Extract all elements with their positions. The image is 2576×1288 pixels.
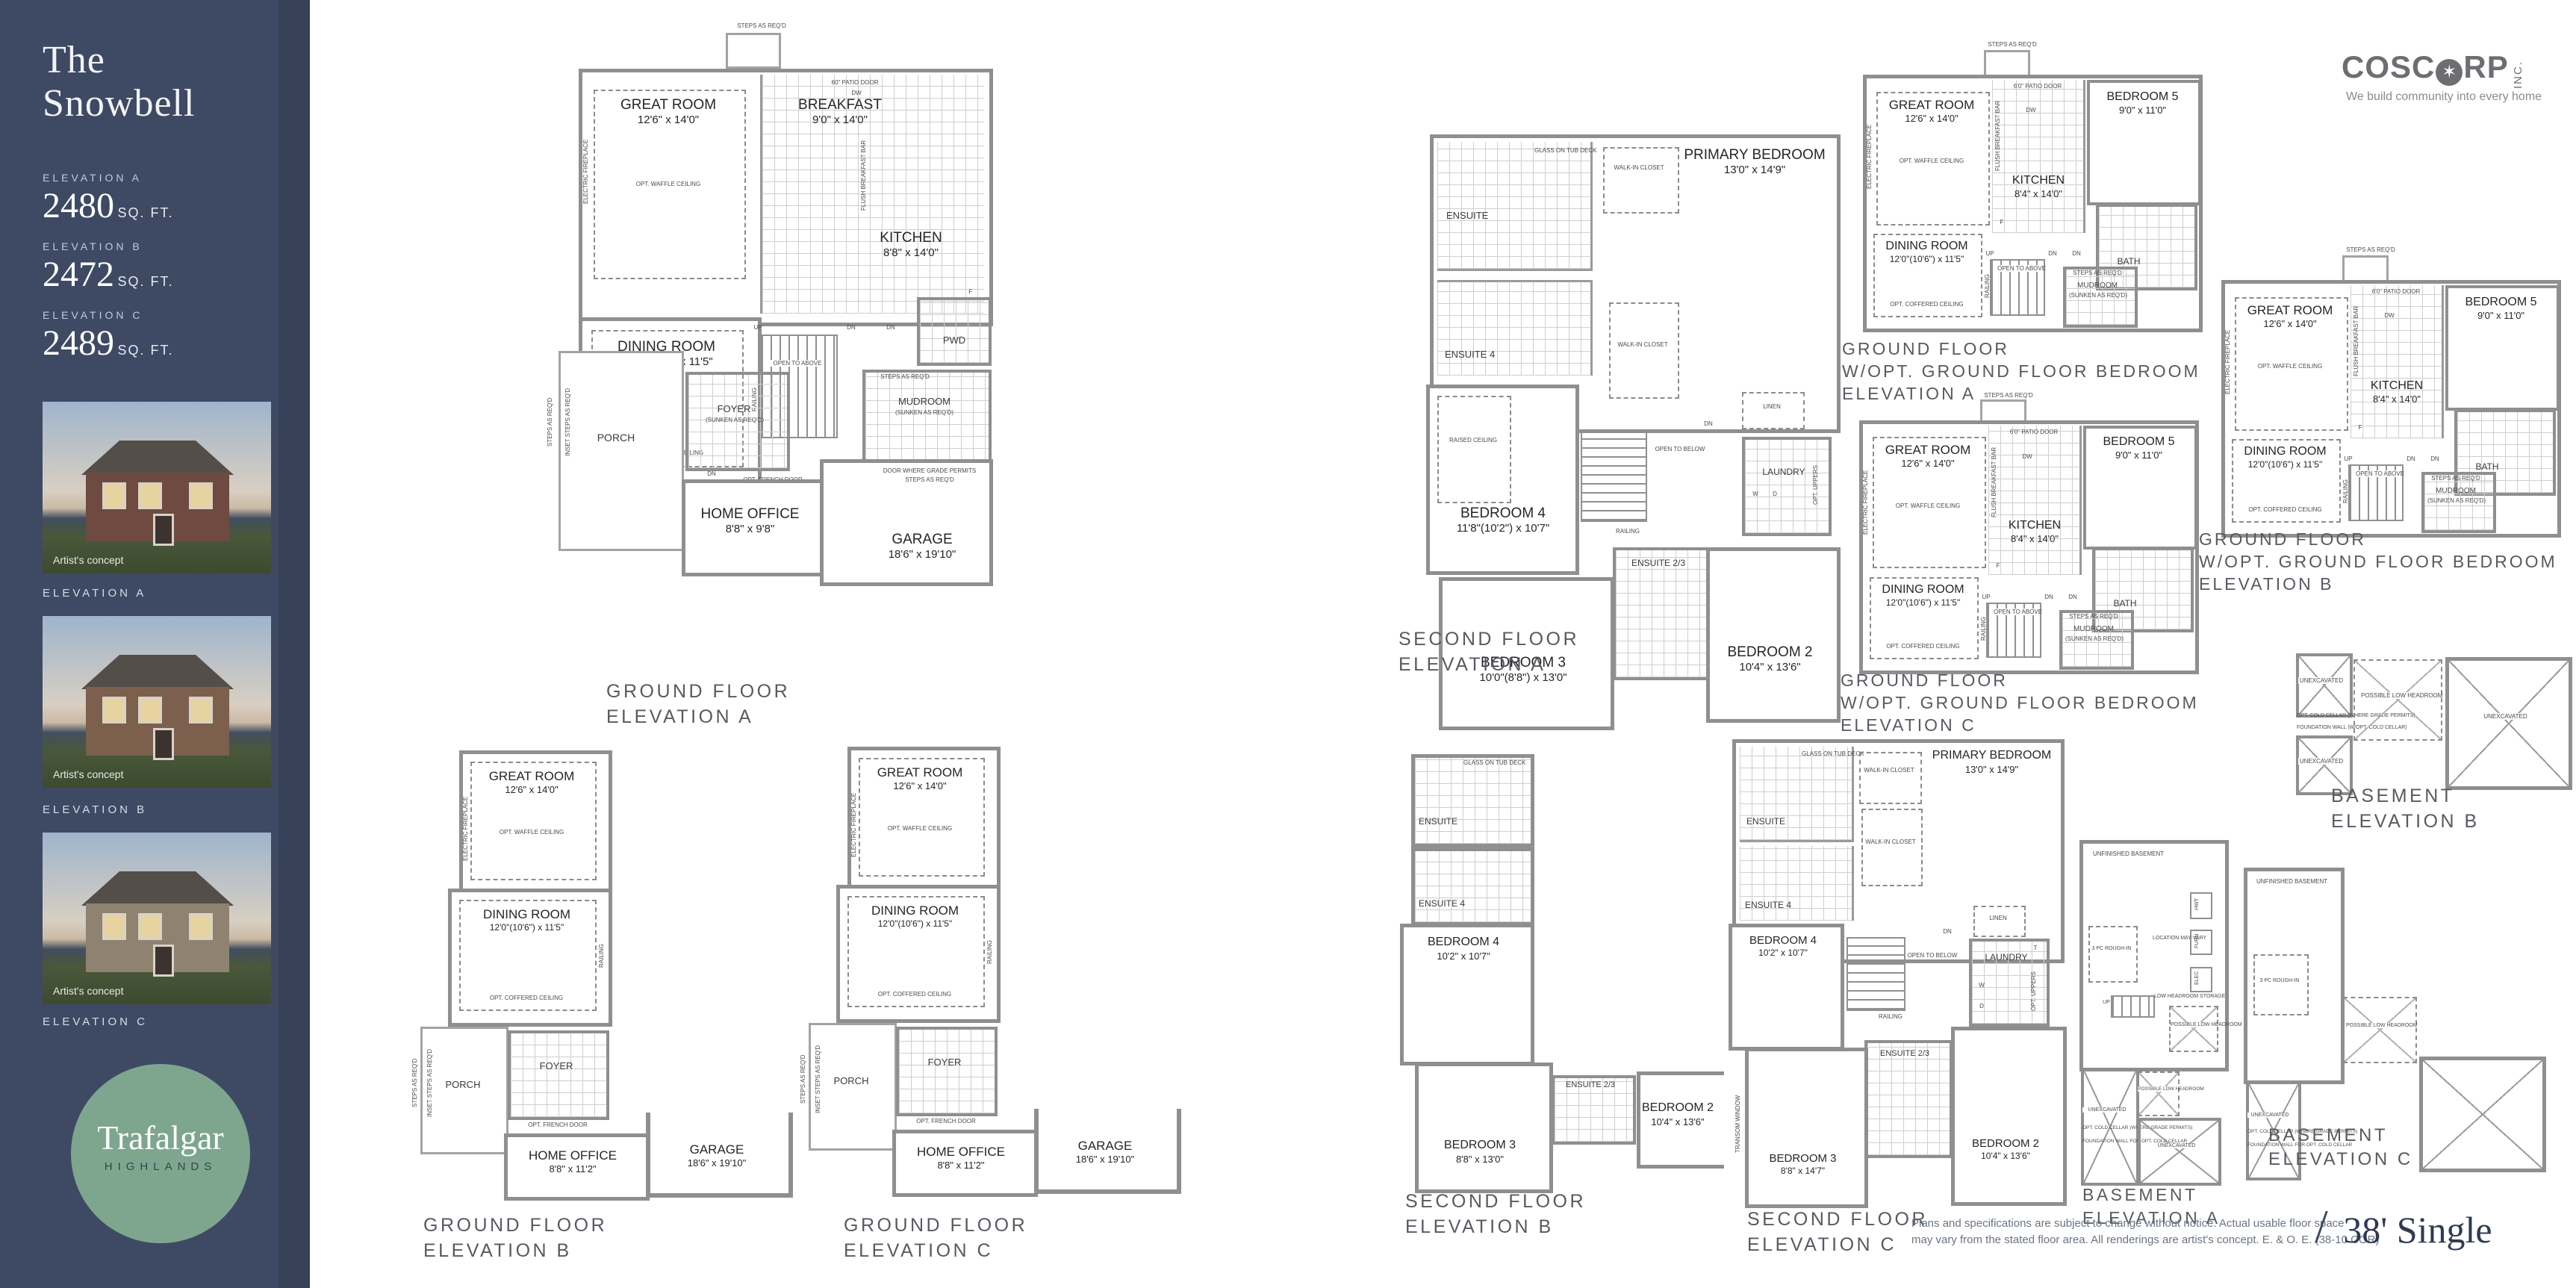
garage-dims: 18'6" x 19'10" — [866, 548, 978, 561]
waffle-ceiling-note: OPT. WAFFLE CEILING — [620, 181, 717, 187]
caption-line: SECOND FLOOR — [1747, 1207, 1928, 1233]
dn-label: DN — [2402, 455, 2420, 462]
unexcavated-label: UNEXCAVATED — [2247, 1113, 2292, 1118]
inset-steps-note: INSET STEPS AS REQ'D — [815, 1034, 821, 1124]
porch-label: PORCH — [437, 1079, 489, 1090]
unfinished-label: UNFINISHED BASEMENT — [2256, 878, 2324, 885]
house-window — [102, 913, 126, 940]
kitchen-label: KITCHEN — [1997, 174, 2079, 187]
office-label: HOME OFFICE — [513, 1148, 632, 1163]
plan-basement-elevation-c: UNFINISHED BASEMENT 3 PC ROUGH-IN POSSIB… — [2233, 859, 2546, 1195]
coffered-note: OPT. COFFERED CEILING — [1884, 301, 1970, 308]
elevation-a-label: ELEVATION A — [43, 172, 173, 184]
ensuite-tile — [1437, 142, 1593, 271]
house-window — [138, 482, 162, 509]
plan-basement-elevation-a: UNFINISHED BASEMENT 3 PC ROUGH-IN HWT FU… — [2072, 833, 2233, 1206]
caption-line: GROUND FLOOR — [2199, 529, 2557, 551]
electric-fireplace-note: ELECTRIC FIREPLACE — [1862, 465, 1869, 540]
railing-note: RAILING — [1980, 609, 1987, 649]
linen-closet — [1742, 392, 1805, 429]
unexcavated-box-large — [2445, 657, 2572, 790]
electric-fireplace-note: ELECTRIC FIREPLACE — [2224, 325, 2231, 399]
wic-label: WALK-IN CLOSET — [1613, 341, 1673, 348]
plan-second-floor-elevation-c: GLASS ON TUB DECK ENSUITE WALK-IN CLOSET… — [1714, 728, 2065, 1251]
inset-steps-note: INSET STEPS AS REQ'D — [426, 1038, 433, 1127]
caption-line: BASEMENT — [2268, 1124, 2413, 1148]
plan-basement-elevation-b: UNEXCAVATED OPT. COLD CELLAR (WHERE GRAD… — [2285, 631, 2576, 825]
mudroom — [862, 370, 992, 464]
plan-caption: GROUND FLOOR ELEVATION C — [844, 1213, 1027, 1263]
french-door-note: OPT. FRENCH DOOR — [520, 1121, 595, 1128]
foyer-label: FOYER — [915, 1057, 974, 1068]
stairs — [2111, 995, 2155, 1018]
great-room-label: GREAT ROOM — [1876, 443, 1980, 458]
page-title: The Snowbell — [43, 39, 195, 125]
pwd-label: PWD — [932, 335, 977, 346]
dining-dims: 12'0"(10'6") x 11'5" — [465, 922, 588, 933]
mud-steps-note: STEPS AS REQ'D — [2065, 270, 2130, 276]
plan-caption: GROUND FLOOR ELEVATION B — [423, 1213, 607, 1263]
elec-label: ELEC — [2194, 969, 2200, 987]
ensuite-label: ENSUITE — [1746, 816, 1806, 827]
rendering-c-label: ELEVATION C — [43, 1015, 148, 1028]
caption-line: ELEVATION C — [2268, 1148, 2413, 1172]
walk-in-closet-1 — [1603, 147, 1679, 214]
great-room-dims: 12'6" x 14'0" — [2238, 318, 2342, 329]
ensuite23-label: ENSUITE 2/3 — [1867, 1049, 1942, 1058]
possible-low-headroom-box — [2138, 1071, 2180, 1116]
plan-ground-floor-elevation-a: STEPS AS REQ'D 60" PATIO DOOR GREAT ROOM… — [523, 22, 1004, 728]
mud-steps-note: STEPS AS REQ'D — [2061, 613, 2127, 620]
caption-line: ELEVATION B — [2199, 573, 2557, 596]
dn-label: DN — [880, 324, 902, 331]
furn-label: FURN — [2194, 932, 2200, 950]
breakfast-label: BREAKFAST — [780, 97, 900, 113]
caption-line: ELEVATION B — [1405, 1215, 1586, 1240]
bath-label: BATH — [2106, 256, 2151, 267]
primary-dims: 13'0" x 14'9" — [1930, 764, 2053, 775]
door-grade-steps-note: STEPS AS REQ'D — [877, 476, 982, 483]
coscorp-tagline: We build community into every home — [2346, 90, 2542, 104]
railing-note: RAILING — [1984, 265, 1991, 307]
exterior-steps — [726, 33, 781, 69]
foyer-tile — [896, 1027, 998, 1116]
dining-label: DINING ROOM — [1876, 240, 1977, 253]
mudroom-sunken-note: (SUNKEN AS REQ'D) — [2065, 635, 2122, 642]
glass-tub-note: GLASS ON TUB DECK — [1802, 750, 1854, 757]
dining-label: DINING ROOM — [465, 907, 588, 922]
garage-dims: 18'6" x 19'10" — [661, 1157, 773, 1169]
office-dims: 8'8" x 11'2" — [513, 1163, 632, 1175]
bedroom3-dims: 8'8" x 13'0" — [1420, 1154, 1540, 1165]
mudroom-label: MUDROOM — [2068, 281, 2127, 290]
walk-in-closet-2 — [1861, 809, 1923, 886]
kitchen-label: KITCHEN — [2356, 379, 2438, 393]
ensuite4-label: ENSUITE 4 — [1419, 898, 1486, 909]
coscorp-inc: INC. — [2512, 60, 2524, 89]
plan-caption: SECOND FLOOR ELEVATION C — [1747, 1207, 1928, 1257]
mudroom-steps-note: STEPS AS REQ'D — [868, 373, 942, 380]
house-door — [153, 514, 174, 546]
low-storage-note: LOW HEADROOM STORAGE — [2154, 994, 2193, 999]
rendering-elevation-a: Artist's concept — [43, 402, 271, 573]
fireplace-note: ELECTRIC FIREPLACE — [462, 791, 469, 866]
unexcavated-box — [2138, 1118, 2221, 1186]
coffered-note: OPT. COFFERED CEILING — [2242, 506, 2328, 513]
bedroom2-label: BEDROOM 2 — [1712, 644, 1828, 661]
primary-label: PRIMARY BEDROOM — [1930, 749, 2053, 762]
foyer-sunken-note: (SUNKEN AS REQ'D) — [702, 417, 768, 423]
loc-vary-note: LOCATION MAY VARY — [2153, 936, 2188, 941]
bedroom3-label: BEDROOM 3 — [1752, 1152, 1853, 1165]
bedroom2-dims: 10'4" x 13'6" — [1712, 661, 1828, 673]
primary-dims: 13'0" x 14'9" — [1684, 164, 1826, 176]
dining-dims: 12'0"(10'6") x 11'5" — [1873, 597, 1973, 608]
flush-bar-note: FLUSH BREAKFAST BAR — [2353, 314, 2359, 376]
possible-low-headroom-label: POSSIBLE LOW HEADROOM — [2361, 692, 2432, 699]
bedroom5-label: BEDROOM 5 — [2454, 296, 2548, 309]
product-slash: / — [2315, 1200, 2328, 1253]
french-door-note: OPT. FRENCH DOOR — [909, 1118, 983, 1124]
garage-label: GARAGE — [866, 532, 978, 548]
kitchen-label: KITCHEN — [1994, 519, 2076, 532]
ensuite-tile — [1411, 754, 1534, 847]
dishwasher-label: DW — [2021, 107, 2041, 113]
up-label: UP — [1977, 594, 1995, 600]
caption-line: GROUND FLOOR — [423, 1213, 607, 1239]
railing-note: RAILING — [2342, 470, 2349, 512]
waffle-note: OPT. WAFFLE CEILING — [483, 829, 580, 836]
bedroom5-label: BEDROOM 5 — [2092, 435, 2185, 449]
porch-outline — [420, 1027, 508, 1154]
railing-note: RAILING — [986, 930, 993, 974]
great-room-dims: 12'6" x 14'0" — [601, 113, 735, 126]
bedroom2-outline — [1706, 547, 1841, 723]
bedroom3-label: BEDROOM 3 — [1420, 1139, 1540, 1152]
porch-steps-note: STEPS AS REQ'D — [547, 373, 553, 470]
dining-label: DINING ROOM — [2235, 445, 2336, 458]
exterior-steps — [1984, 50, 2030, 77]
foyer-tile — [508, 1030, 609, 1120]
bedroom3-outline — [1745, 1048, 1868, 1208]
trafalgar-wordmark: Trafalgar — [71, 1118, 250, 1157]
sidebar-edge-shade — [279, 0, 310, 1288]
bedroom2-label: BEDROOM 2 — [1957, 1137, 2054, 1150]
possible-low-headroom-box — [2353, 659, 2442, 741]
furn-box — [2190, 930, 2212, 955]
rendering-elevation-b: Artist's concept — [43, 616, 271, 788]
bedroom4-label: BEDROOM 4 — [1436, 505, 1570, 522]
up-label: UP — [2339, 455, 2357, 462]
walk-in-closet-2 — [1609, 302, 1679, 399]
caption-line: GROUND FLOOR — [1842, 338, 2200, 361]
home-office-label: HOME OFFICE — [688, 506, 812, 523]
artists-concept-caption: Artist's concept — [53, 985, 124, 997]
caption-line: W/OPT. GROUND FLOOR BEDROOM — [1841, 692, 2199, 715]
raised-ceiling-box — [1437, 396, 1511, 503]
dn-label: DN — [840, 324, 862, 331]
unexcavated-label: UNEXCAVATED — [2470, 713, 2541, 720]
plan-caption: GROUND FLOOR ELEVATION A — [606, 679, 790, 729]
bedroom4-dims: 10'2" x 10'7" — [1735, 948, 1832, 958]
kitchen-dims: 8'4" x 14'0" — [1997, 188, 2079, 199]
bedroom5-dims: 9'0" x 11'0" — [2092, 449, 2185, 461]
coscorp-wordmark-left: COSC — [2342, 49, 2435, 84]
ensuite23-label: ENSUITE 2/3 — [1618, 558, 1699, 568]
mudroom-sunken-note: (SUNKEN AS REQ'D) — [2069, 292, 2126, 299]
caption-line: GROUND FLOOR — [1841, 670, 2199, 692]
ensuite-label: ENSUITE — [1446, 210, 1506, 221]
elevation-b-unit: SQ. FT. — [117, 274, 173, 289]
plan-ground-floor-elevation-b: GREAT ROOM 12'6" x 14'0" OPT. WAFFLE CEI… — [414, 739, 788, 1254]
caption-line: W/OPT. GROUND FLOOR BEDROOM — [1842, 361, 2200, 383]
unexcavated-label: UNEXCAVATED — [2144, 1143, 2209, 1148]
unexcavated-label: UNEXCAVATED — [2298, 677, 2345, 684]
garage-label: GARAGE — [661, 1142, 773, 1157]
elevation-a-sqft: 2480 — [43, 186, 114, 225]
unexcavated-box — [2296, 653, 2353, 718]
plan-caption: BASEMENT ELEVATION C — [2268, 1124, 2413, 1172]
kitchen-label: KITCHEN — [851, 230, 971, 246]
laundry-tub-label: T — [2030, 945, 2041, 951]
laundry-label: LAUNDRY — [1749, 467, 1818, 477]
railing-note: RAILING — [1602, 528, 1654, 535]
house-window — [189, 913, 213, 940]
waffle-ceiling-note: OPT. WAFFLE CEILING — [1890, 158, 1973, 164]
dn-label: DN — [2064, 594, 2082, 600]
mudroom-sunken-note: (SUNKEN AS REQ'D) — [2427, 497, 2484, 504]
ensuite23-label: ENSUITE 2/3 — [1555, 1080, 1626, 1089]
possible-label: POSSIBLE LOW HEADROOM — [2346, 1023, 2410, 1028]
kitchen-dims: 8'4" x 14'0" — [1994, 533, 2076, 544]
great-room-label: GREAT ROOM — [476, 769, 588, 784]
elec-box — [2190, 967, 2212, 992]
house-window — [189, 482, 213, 509]
dn-label: DN — [2068, 250, 2085, 257]
house-door — [153, 728, 174, 760]
great-room-dims: 12'6" x 14'0" — [864, 780, 976, 791]
plan-caption: BASEMENT ELEVATION B — [2331, 784, 2480, 834]
mudroom-sunken-note: (SUNKEN AS REQ'D) — [883, 409, 966, 416]
dn-label: DN — [2044, 250, 2062, 257]
rough-in-label: 3 PC ROUGH-IN — [2256, 978, 2303, 983]
up-label: UP — [1981, 250, 1999, 257]
elevation-a-stat: ELEVATION A 2480 SQ. FT. — [43, 172, 173, 226]
office-dims: 8'8" x 11'2" — [901, 1160, 1021, 1171]
plan-second-floor-elevation-a: GLASS ON TUB DECK ENSUITE WALK-IN CLOSET… — [1385, 63, 1833, 668]
linen-label: LINEN — [1981, 915, 2015, 921]
bedroom2-label: BEDROOM 2 — [1637, 1101, 1719, 1115]
fireplace-note: ELECTRIC FIREPLACE — [850, 788, 857, 862]
elevation-c-sqft: 2489 — [43, 323, 114, 363]
dn-label: DN — [700, 470, 723, 477]
dining-dims: 12'0"(10'6") x 11'5" — [1876, 254, 1977, 264]
garage-label: GARAGE — [1049, 1139, 1161, 1154]
open-below-note: OPEN TO BELOW — [1906, 952, 1959, 959]
fridge-label: F — [965, 288, 977, 295]
coffered-note: OPT. COFFERED CEILING — [1880, 643, 1966, 650]
plan-caption: SECOND FLOOR ELEVATION A — [1399, 627, 1579, 677]
dining-dims: 12'0"(10'6") x 11'5" — [2235, 459, 2336, 470]
fdn-wall-note: FOUNDATION WALL FOR OPT. COLD CELLAR — [2082, 1139, 2132, 1144]
great-room-label: GREAT ROOM — [601, 97, 735, 113]
opt-uppers-note: OPT. UPPERS — [2030, 968, 2037, 1015]
bedroom4-dims: 11'8"(10'2") x 10'7" — [1436, 522, 1570, 535]
steps-note: STEPS AS REQ'D — [800, 1034, 806, 1124]
caption-line: W/OPT. GROUND FLOOR BEDROOM — [2199, 551, 2557, 573]
hwt-label: HWT — [2194, 895, 2200, 913]
cold-cellar-note: OPT. COLD CELLAR (WHERE GRADE PERMITS) — [2297, 713, 2349, 718]
elevation-b-sqft: 2472 — [43, 255, 114, 294]
elevation-a-unit: SQ. FT. — [117, 205, 173, 220]
trafalgar-highlands-logo: Trafalgar HIGHLANDS — [71, 1064, 250, 1243]
kitchen-tile — [2351, 285, 2444, 438]
bedroom4-label: BEDROOM 4 — [1407, 936, 1519, 949]
house-window — [102, 482, 126, 509]
product-type: / 38' Single — [2315, 1199, 2492, 1254]
house-roof — [71, 441, 244, 475]
plan-gf-opt-bedroom-elevation-c: STEPS AS REQ'D 6'0" PATIO DOOR GREAT ROO… — [1837, 392, 2214, 724]
steps-note: STEPS AS REQ'D — [1967, 41, 2057, 48]
steps-note: STEPS AS REQ'D — [2326, 246, 2415, 253]
elevation-c-stat: ELEVATION C 2489 SQ. FT. — [43, 309, 173, 364]
possible-label: POSSIBLE LOW HEADROOM — [2138, 1086, 2177, 1092]
unexcavated-label: UNEXCAVATED — [2298, 758, 2345, 765]
coscorp-logo: COSC✶RPINC. We build community into ever… — [2342, 49, 2542, 104]
unfinished-label: UNFINISHED BASEMENT — [2093, 850, 2160, 857]
ensuite4-label: ENSUITE 4 — [1445, 349, 1512, 360]
plan-caption: SECOND FLOOR ELEVATION B — [1405, 1189, 1586, 1239]
flush-bar-note: FLUSH BREAKFAST BAR — [1994, 108, 2001, 171]
dn-label: DN — [2040, 594, 2058, 600]
dining-dims: 12'0"(10'6") x 11'5" — [853, 918, 977, 929]
bedroom5-label: BEDROOM 5 — [2096, 90, 2189, 104]
dn-label: DN — [2426, 455, 2444, 462]
open-above-note: OPEN TO ABOVE — [2356, 470, 2402, 477]
bath-label: BATH — [2465, 461, 2510, 472]
caption-line: ELEVATION B — [423, 1239, 607, 1264]
steps-note: STEPS AS REQ'D — [411, 1038, 418, 1127]
bedroom2-dims: 10'4" x 13'6" — [1637, 1116, 1719, 1127]
caption-line: SECOND FLOOR — [1405, 1189, 1586, 1215]
home-office-dims: 8'8" x 9'8" — [688, 523, 812, 535]
linen-closet — [1973, 906, 2026, 937]
glass-tub-note: GLASS ON TUB DECK — [1463, 759, 1523, 766]
flush-breakfast-bar-note: FLUSH BREAKFAST BAR — [860, 134, 867, 217]
up-label: UP — [747, 324, 769, 331]
bedroom3-outline — [1415, 1063, 1553, 1193]
caption-line: ELEVATION C — [844, 1239, 1027, 1264]
rendering-b-label: ELEVATION B — [43, 803, 147, 816]
patio-door-note: 6'0" PATIO DOOR — [1995, 429, 2073, 435]
open-to-below-note: OPEN TO BELOW — [1650, 446, 1710, 452]
house-window — [138, 913, 162, 940]
caption-line: ELEVATION A — [606, 705, 790, 730]
powder-room — [917, 297, 992, 366]
maple-leaf-icon: ✶ — [2436, 59, 2463, 86]
patio-door-note: 6'0" PATIO DOOR — [1999, 83, 2076, 90]
caption-line: ELEVATION A — [1399, 653, 1579, 678]
bedroom5-dims: 9'0" x 11'0" — [2454, 310, 2548, 321]
title-line-1: The — [43, 39, 195, 82]
dn-label: DN — [1938, 928, 1957, 935]
transom-note: TRANSOM WINDOW — [1735, 1086, 1741, 1161]
dryer-label: D — [1975, 1003, 1988, 1009]
unexcavated-label: UNEXCAVATED — [2082, 1107, 2132, 1113]
caption-line: GROUND FLOOR — [606, 679, 790, 705]
open-above-note: OPEN TO ABOVE — [1994, 609, 2040, 615]
laundry-label: LAUNDRY — [1973, 952, 2039, 962]
ensuite4-label: ENSUITE 4 — [1745, 900, 1812, 910]
dining-label: DINING ROOM — [1873, 583, 1973, 597]
up-label: UP — [2100, 1000, 2112, 1005]
patio-door-note: 6'0" PATIO DOOR — [2357, 288, 2435, 295]
raised-ceiling-note: RAISED CEILING — [1443, 437, 1503, 444]
patio-door-note: 60" PATIO DOOR — [806, 79, 903, 86]
steps-note: STEPS AS REQ'D — [1964, 392, 2053, 399]
house-window — [102, 697, 126, 724]
artists-concept-caption: Artist's concept — [53, 554, 124, 566]
coscorp-wordmark-right: RP — [2463, 49, 2508, 84]
waffle-ceiling-note: OPT. WAFFLE CEILING — [2248, 363, 2332, 370]
unexcavated-garage-box — [2419, 1057, 2546, 1172]
ensuite4-tile — [1437, 280, 1593, 376]
stairwell — [1847, 937, 1905, 1011]
coffered-note: OPT. COFFERED CEILING — [474, 995, 579, 1001]
caption-line: SECOND FLOOR — [1399, 627, 1579, 653]
plan-gf-opt-bedroom-elevation-a: STEPS AS REQ'D 6'0" PATIO DOOR GREAT ROO… — [1841, 41, 2218, 385]
kitchen-dims: 8'8" x 14'0" — [851, 246, 971, 259]
great-room-dims: 12'6" x 14'0" — [1879, 113, 1984, 124]
fdn-wall-note: FOUNDATION WALL (W/OPT. COLD CELLAR) — [2297, 725, 2349, 730]
washer-label: W — [1748, 491, 1763, 497]
kitchen-dims: 8'4" x 14'0" — [2356, 393, 2438, 405]
caption-line: BASEMENT — [2331, 784, 2480, 809]
mudroom-label: MUDROOM — [2426, 487, 2486, 495]
glass-tub-note: GLASS ON TUB DECK — [1534, 147, 1594, 154]
coffered-note: OPT. COFFERED CEILING — [862, 991, 967, 998]
railing-note: RAILING — [598, 933, 605, 978]
house-door — [153, 945, 174, 977]
cold-cellar-note: OPT. COLD CELLAR (WHERE GRADE PERMITS) — [2082, 1125, 2132, 1130]
elevation-c-unit: SQ. FT. — [117, 343, 173, 358]
washer-label: W — [1975, 982, 1988, 989]
elevation-b-stat: ELEVATION B 2472 SQ. FT. — [43, 240, 173, 295]
dn-label: DN — [1697, 420, 1720, 427]
mud-steps-note: STEPS AS REQ'D — [2423, 475, 2489, 482]
rough-in-box — [2253, 954, 2309, 1015]
plan-gf-opt-bedroom-elevation-b: STEPS AS REQ'D 6'0" PATIO DOOR GREAT ROO… — [2199, 246, 2576, 590]
foyer-label: FOYER — [700, 403, 768, 414]
dishwasher-label: DW — [2380, 312, 2399, 319]
elevation-b-label: ELEVATION B — [43, 240, 173, 252]
bedroom5-dims: 9'0" x 11'0" — [2096, 105, 2189, 116]
rough-in-box — [2088, 926, 2138, 983]
caption-line: ELEVATION B — [2331, 809, 2480, 835]
great-room-dims: 12'6" x 14'0" — [476, 784, 588, 795]
flush-bar-note: FLUSH BREAKFAST BAR — [1991, 455, 1997, 517]
porch-label: PORCH — [825, 1075, 877, 1086]
dishwasher-label: DW — [2017, 453, 2037, 460]
waffle-ceiling-note: OPT. WAFFLE CEILING — [1886, 503, 1970, 509]
wic-label: WALK-IN CLOSET — [1864, 839, 1917, 845]
highlands-wordmark: HIGHLANDS — [71, 1160, 250, 1173]
elevation-c-label: ELEVATION C — [43, 309, 173, 321]
great-room-label: GREAT ROOM — [864, 765, 976, 780]
bedroom2-outline — [1951, 1027, 2067, 1206]
steps-note: STEPS AS REQ'D — [709, 22, 814, 29]
inset-steps-note: INSET STEPS AS REQ'D — [564, 373, 571, 470]
